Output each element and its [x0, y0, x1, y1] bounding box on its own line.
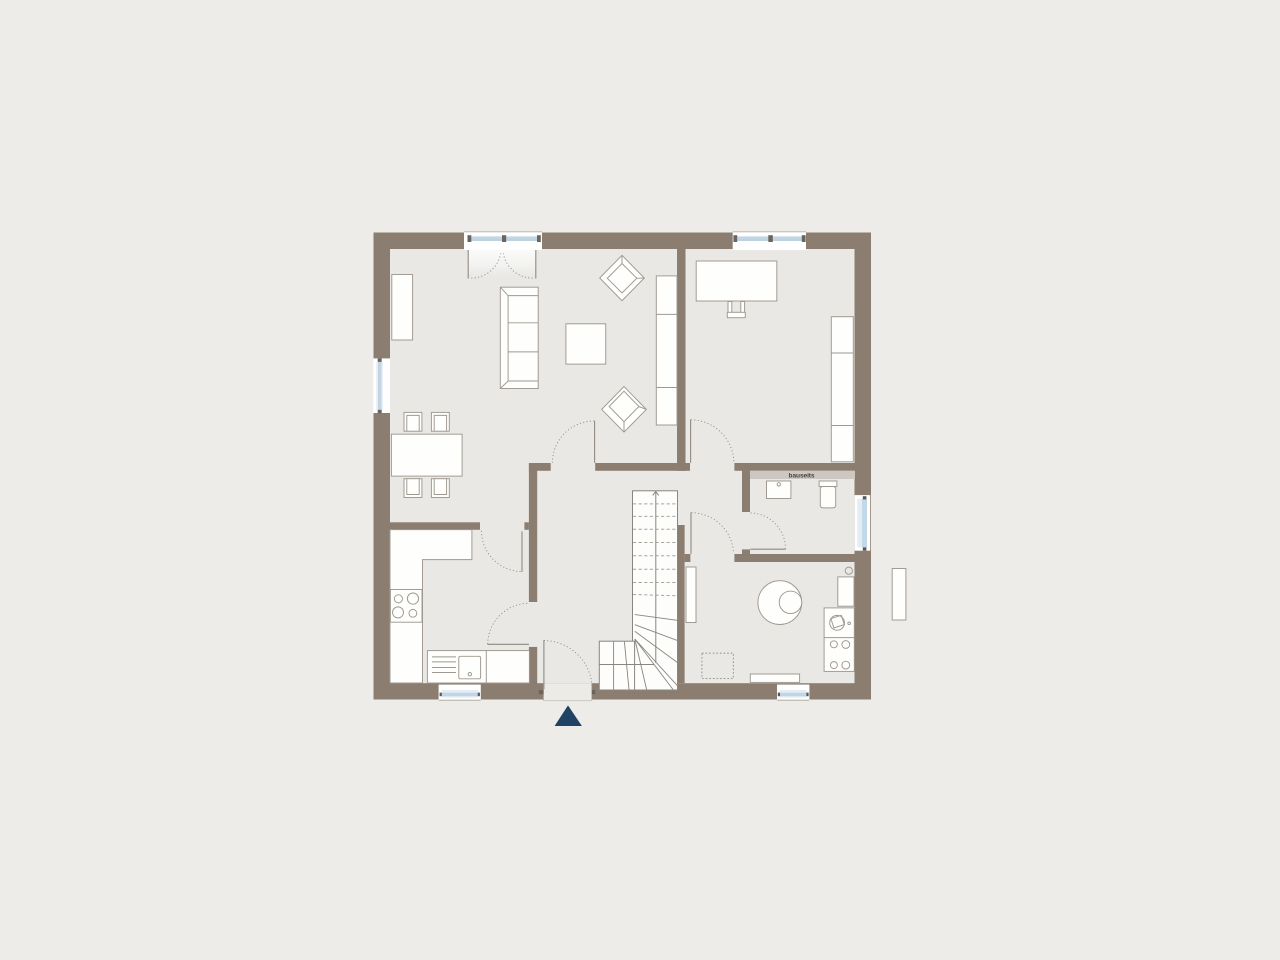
- svg-text:bauseits: bauseits: [789, 472, 815, 479]
